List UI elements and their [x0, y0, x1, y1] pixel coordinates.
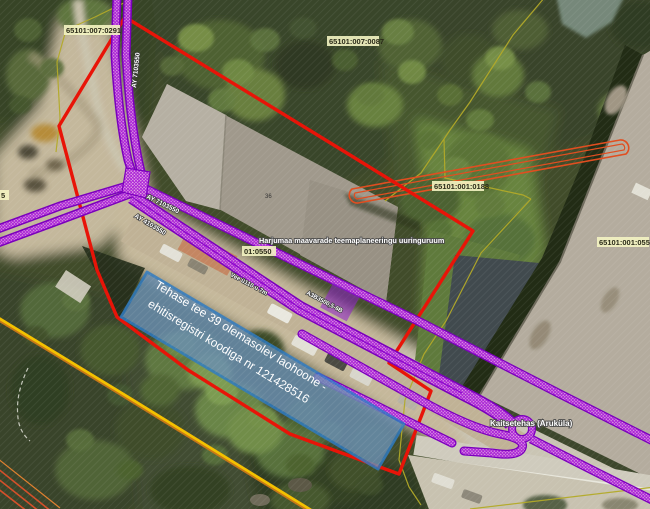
svg-text:5: 5: [1, 191, 5, 200]
svg-text:65101:001:0188: 65101:001:0188: [434, 182, 489, 191]
svg-text:01:0550: 01:0550: [244, 247, 272, 256]
svg-text:65101:001:0551: 65101:001:0551: [599, 238, 650, 247]
svg-text:Kaitsetehas (Aruküla): Kaitsetehas (Aruküla): [490, 419, 573, 428]
svg-text:65101:007:0087: 65101:007:0087: [329, 37, 384, 46]
svg-text:36: 36: [265, 194, 272, 200]
svg-text:65101:007:0291: 65101:007:0291: [66, 26, 121, 35]
svg-text:Harjumaa maavarade teemaplanee: Harjumaa maavarade teemaplaneeringu uuri…: [259, 236, 445, 245]
